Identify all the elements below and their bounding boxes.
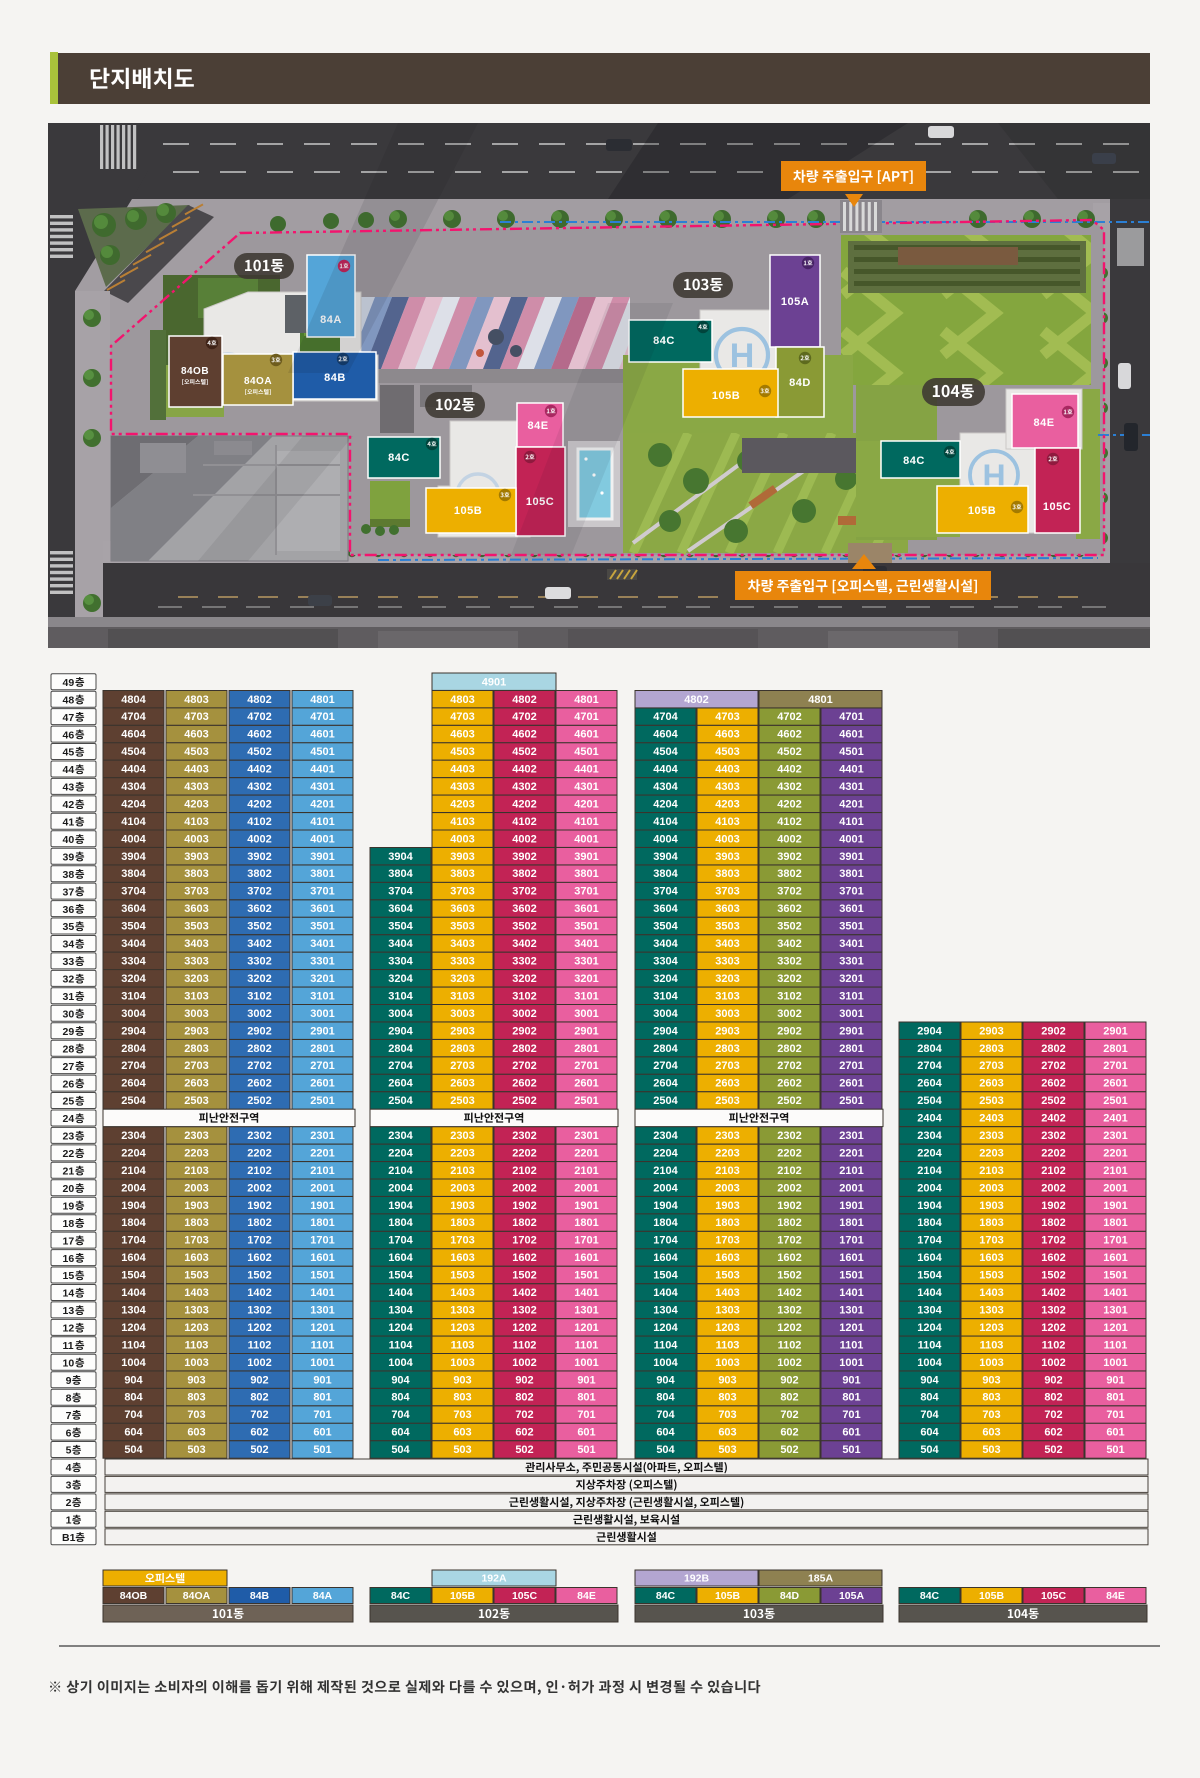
svg-text:4102: 4102 <box>247 816 271 828</box>
svg-text:1801: 1801 <box>1103 1217 1127 1229</box>
svg-text:2801: 2801 <box>310 1043 334 1055</box>
svg-text:1503: 1503 <box>979 1270 1003 1282</box>
svg-text:3404: 3404 <box>121 938 146 950</box>
svg-text:3804: 3804 <box>388 868 413 880</box>
svg-text:1901: 1901 <box>310 1200 334 1212</box>
svg-text:3303: 3303 <box>715 956 739 968</box>
svg-text:704: 704 <box>124 1409 143 1421</box>
svg-text:4603: 4603 <box>184 729 208 741</box>
svg-text:4102: 4102 <box>512 816 536 828</box>
svg-text:3501: 3501 <box>839 921 863 933</box>
svg-text:2704: 2704 <box>917 1060 942 1072</box>
svg-text:4404: 4404 <box>121 764 146 776</box>
svg-text:2003: 2003 <box>184 1182 208 1194</box>
svg-text:2704: 2704 <box>121 1060 146 1072</box>
svg-text:3603: 3603 <box>184 903 208 915</box>
svg-text:2501: 2501 <box>839 1095 863 1107</box>
svg-text:2602: 2602 <box>512 1078 536 1090</box>
svg-text:4702: 4702 <box>512 711 536 723</box>
svg-text:504: 504 <box>920 1444 939 1456</box>
svg-text:3902: 3902 <box>777 851 801 863</box>
svg-text:105C: 105C <box>1043 501 1071 513</box>
svg-text:34: 34 <box>63 939 75 951</box>
svg-text:2204: 2204 <box>917 1148 942 1160</box>
svg-text:1504: 1504 <box>388 1270 413 1282</box>
svg-text:3701: 3701 <box>839 886 863 898</box>
svg-text:2301: 2301 <box>1103 1130 1127 1142</box>
svg-text:4: 4 <box>66 1462 72 1474</box>
svg-text:2202: 2202 <box>1041 1148 1065 1160</box>
svg-text:3501: 3501 <box>574 921 598 933</box>
svg-text:1402: 1402 <box>777 1287 801 1299</box>
svg-text:2604: 2604 <box>917 1078 942 1090</box>
svg-text:1101: 1101 <box>840 1339 864 1351</box>
svg-text:13: 13 <box>63 1305 75 1317</box>
svg-text:804: 804 <box>124 1392 143 1404</box>
svg-text:1904: 1904 <box>121 1200 146 1212</box>
svg-text:3903: 3903 <box>715 851 739 863</box>
svg-text:4201: 4201 <box>839 798 863 810</box>
svg-text:3601: 3601 <box>574 903 598 915</box>
svg-text:2004: 2004 <box>653 1182 678 1194</box>
svg-text:2901: 2901 <box>310 1025 334 1037</box>
svg-text:105C: 105C <box>1041 1590 1067 1602</box>
svg-text:2902: 2902 <box>247 1025 271 1037</box>
svg-text:1901: 1901 <box>839 1200 863 1212</box>
svg-text:84C: 84C <box>656 1590 676 1602</box>
svg-text:702: 702 <box>780 1409 798 1421</box>
svg-text:1004: 1004 <box>917 1357 942 1369</box>
svg-text:1002: 1002 <box>777 1357 801 1369</box>
svg-text:1003: 1003 <box>979 1357 1003 1369</box>
svg-text:84E: 84E <box>1033 417 1054 429</box>
svg-text:904: 904 <box>656 1374 675 1386</box>
svg-text:4202: 4202 <box>512 798 536 810</box>
svg-text:192B: 192B <box>684 1573 710 1585</box>
svg-text:1204: 1204 <box>121 1322 146 1334</box>
svg-text:1003: 1003 <box>450 1357 474 1369</box>
svg-text:11: 11 <box>63 1340 74 1352</box>
svg-text:2901: 2901 <box>1103 1025 1127 1037</box>
svg-text:2004: 2004 <box>917 1182 942 1194</box>
svg-text:1604: 1604 <box>653 1252 678 1264</box>
svg-text:1104: 1104 <box>918 1339 943 1351</box>
svg-text:604: 604 <box>124 1427 143 1439</box>
svg-text:1103: 1103 <box>980 1339 1004 1351</box>
svg-text:2502: 2502 <box>247 1095 271 1107</box>
svg-text:2703: 2703 <box>715 1060 739 1072</box>
svg-text:3003: 3003 <box>450 1008 474 1020</box>
svg-text:702: 702 <box>1044 1409 1062 1421</box>
svg-text:1302: 1302 <box>512 1305 536 1317</box>
svg-text:1004: 1004 <box>121 1357 146 1369</box>
svg-text:3002: 3002 <box>247 1008 271 1020</box>
svg-text:2101: 2101 <box>310 1165 334 1177</box>
svg-text:4401: 4401 <box>310 764 334 776</box>
svg-text:701: 701 <box>1106 1409 1124 1421</box>
svg-text:1903: 1903 <box>715 1200 739 1212</box>
svg-text:3602: 3602 <box>512 903 536 915</box>
svg-text:4703: 4703 <box>450 711 474 723</box>
svg-text:904: 904 <box>124 1374 143 1386</box>
svg-text:3104: 3104 <box>388 990 413 1002</box>
svg-text:4402: 4402 <box>777 764 801 776</box>
svg-text:4402: 4402 <box>247 764 271 776</box>
svg-text:1501: 1501 <box>1103 1270 1127 1282</box>
svg-text:2902: 2902 <box>777 1025 801 1037</box>
svg-text:2304: 2304 <box>121 1130 146 1142</box>
svg-text:1802: 1802 <box>512 1217 536 1229</box>
svg-text:804: 804 <box>920 1392 939 1404</box>
svg-text:4302: 4302 <box>777 781 801 793</box>
svg-text:2803: 2803 <box>715 1043 739 1055</box>
svg-text:4701: 4701 <box>310 711 334 723</box>
svg-text:1804: 1804 <box>121 1217 146 1229</box>
svg-text:84C: 84C <box>903 455 925 467</box>
svg-text:3801: 3801 <box>310 868 334 880</box>
svg-text:4202: 4202 <box>247 798 271 810</box>
svg-text:26: 26 <box>63 1078 75 1090</box>
svg-text:3303: 3303 <box>450 956 474 968</box>
svg-text:4104: 4104 <box>121 816 146 828</box>
svg-text:3201: 3201 <box>574 973 598 985</box>
svg-text:2104: 2104 <box>388 1165 413 1177</box>
svg-text:3904: 3904 <box>121 851 146 863</box>
svg-text:1201: 1201 <box>839 1322 863 1334</box>
svg-text:39: 39 <box>63 851 75 863</box>
svg-text:1001: 1001 <box>839 1357 863 1369</box>
svg-text:704: 704 <box>391 1409 410 1421</box>
svg-text:1703: 1703 <box>715 1235 739 1247</box>
svg-text:2601: 2601 <box>310 1078 334 1090</box>
svg-text:1201: 1201 <box>1103 1322 1127 1334</box>
svg-text:4101: 4101 <box>839 816 863 828</box>
svg-text:1002: 1002 <box>1041 1357 1065 1369</box>
svg-text:1702: 1702 <box>512 1235 536 1247</box>
svg-text:4303: 4303 <box>450 781 474 793</box>
svg-text:84OA: 84OA <box>244 376 272 387</box>
svg-text:2504: 2504 <box>388 1095 413 1107</box>
svg-text:4103: 4103 <box>450 816 474 828</box>
svg-text:1802: 1802 <box>1041 1217 1065 1229</box>
svg-text:1201: 1201 <box>574 1322 598 1334</box>
svg-text:2502: 2502 <box>1041 1095 1065 1107</box>
svg-text:2102: 2102 <box>1041 1165 1065 1177</box>
svg-text:3403: 3403 <box>450 938 474 950</box>
svg-text:1904: 1904 <box>917 1200 942 1212</box>
svg-text:3004: 3004 <box>388 1008 413 1020</box>
svg-text:2904: 2904 <box>121 1025 146 1037</box>
svg-text:3903: 3903 <box>184 851 208 863</box>
svg-text:1204: 1204 <box>917 1322 942 1334</box>
svg-text:4204: 4204 <box>653 798 678 810</box>
svg-text:2203: 2203 <box>715 1148 739 1160</box>
svg-text:2201: 2201 <box>839 1148 863 1160</box>
svg-text:2303: 2303 <box>450 1130 474 1142</box>
svg-text:4503: 4503 <box>184 746 208 758</box>
svg-text:3002: 3002 <box>777 1008 801 1020</box>
svg-text:2702: 2702 <box>247 1060 271 1072</box>
svg-text:2202: 2202 <box>512 1148 536 1160</box>
svg-text:1804: 1804 <box>917 1217 942 1229</box>
svg-text:84OA: 84OA <box>183 1590 211 1602</box>
svg-text:1603: 1603 <box>450 1252 474 1264</box>
svg-text:4001: 4001 <box>574 833 598 845</box>
svg-text:84E: 84E <box>577 1590 596 1602</box>
svg-text:2601: 2601 <box>1103 1078 1127 1090</box>
svg-text:1202: 1202 <box>777 1322 801 1334</box>
svg-text:3703: 3703 <box>450 886 474 898</box>
svg-text:3604: 3604 <box>653 903 678 915</box>
svg-text:503: 503 <box>982 1444 1000 1456</box>
svg-text:2704: 2704 <box>653 1060 678 1072</box>
svg-text:903: 903 <box>718 1374 736 1386</box>
svg-text:2102: 2102 <box>247 1165 271 1177</box>
svg-text:2903: 2903 <box>715 1025 739 1037</box>
svg-text:3302: 3302 <box>247 956 271 968</box>
svg-text:9: 9 <box>66 1375 72 1387</box>
svg-text:105B: 105B <box>454 505 482 517</box>
svg-text:1801: 1801 <box>574 1217 598 1229</box>
svg-text:4702: 4702 <box>247 711 271 723</box>
svg-text:3102: 3102 <box>512 990 536 1002</box>
svg-text:2902: 2902 <box>512 1025 536 1037</box>
svg-text:2503: 2503 <box>715 1095 739 1107</box>
svg-text:84OB: 84OB <box>181 366 209 377</box>
svg-text:3803: 3803 <box>715 868 739 880</box>
svg-text:84C: 84C <box>920 1590 940 1602</box>
svg-text:45: 45 <box>63 747 75 759</box>
svg-text:3203: 3203 <box>715 973 739 985</box>
svg-text:3802: 3802 <box>512 868 536 880</box>
svg-text:29: 29 <box>63 1026 75 1038</box>
svg-text:903: 903 <box>453 1374 471 1386</box>
svg-text:1904: 1904 <box>388 1200 413 1212</box>
svg-text:2504: 2504 <box>917 1095 942 1107</box>
svg-text:701: 701 <box>842 1409 860 1421</box>
svg-text:1302: 1302 <box>777 1305 801 1317</box>
svg-text:4004: 4004 <box>121 833 146 845</box>
svg-text:2804: 2804 <box>917 1043 942 1055</box>
svg-text:1104: 1104 <box>122 1339 147 1351</box>
svg-text:4503: 4503 <box>450 746 474 758</box>
svg-text:801: 801 <box>842 1392 860 1404</box>
svg-text:24: 24 <box>63 1113 75 1125</box>
svg-text:15: 15 <box>63 1270 75 1282</box>
svg-text:1202: 1202 <box>1041 1322 1065 1334</box>
svg-text:4503: 4503 <box>715 746 739 758</box>
svg-text:84B: 84B <box>250 1590 270 1602</box>
svg-text:904: 904 <box>391 1374 410 1386</box>
svg-text:1602: 1602 <box>1041 1252 1065 1264</box>
svg-text:1903: 1903 <box>184 1200 208 1212</box>
svg-text:4703: 4703 <box>184 711 208 723</box>
svg-text:31: 31 <box>63 991 75 1003</box>
svg-text:1902: 1902 <box>512 1200 536 1212</box>
svg-text:3301: 3301 <box>839 956 863 968</box>
svg-text:4701: 4701 <box>839 711 863 723</box>
svg-text:1502: 1502 <box>777 1270 801 1282</box>
svg-text:4403: 4403 <box>184 764 208 776</box>
svg-text:105C: 105C <box>512 1590 538 1602</box>
svg-text:4103: 4103 <box>184 816 208 828</box>
svg-text:4603: 4603 <box>450 729 474 741</box>
svg-text:185A: 185A <box>808 1573 834 1585</box>
svg-text:601: 601 <box>577 1427 595 1439</box>
svg-text:4101: 4101 <box>310 816 334 828</box>
svg-text:1102: 1102 <box>1042 1339 1066 1351</box>
svg-text:1403: 1403 <box>450 1287 474 1299</box>
svg-text:4501: 4501 <box>574 746 598 758</box>
svg-text:1802: 1802 <box>247 1217 271 1229</box>
svg-text:1204: 1204 <box>653 1322 678 1334</box>
svg-text:1702: 1702 <box>1041 1235 1065 1247</box>
svg-text:802: 802 <box>250 1392 268 1404</box>
svg-text:4102: 4102 <box>777 816 801 828</box>
svg-text:702: 702 <box>250 1409 268 1421</box>
svg-text:2003: 2003 <box>450 1182 474 1194</box>
svg-text:3804: 3804 <box>653 868 678 880</box>
svg-text:4201: 4201 <box>310 798 334 810</box>
svg-text:702: 702 <box>515 1409 533 1421</box>
svg-text:105A: 105A <box>839 1590 865 1602</box>
svg-text:21: 21 <box>63 1166 75 1178</box>
svg-text:1502: 1502 <box>1041 1270 1065 1282</box>
svg-text:1203: 1203 <box>184 1322 208 1334</box>
svg-text:803: 803 <box>982 1392 1000 1404</box>
svg-text:44: 44 <box>63 764 75 776</box>
svg-text:5: 5 <box>66 1445 72 1457</box>
svg-text:3101: 3101 <box>574 990 598 1002</box>
svg-text:902: 902 <box>515 1374 533 1386</box>
svg-text:1801: 1801 <box>839 1217 863 1229</box>
svg-text:2101: 2101 <box>839 1165 863 1177</box>
svg-text:504: 504 <box>656 1444 675 1456</box>
svg-text:1304: 1304 <box>388 1305 413 1317</box>
svg-text:2601: 2601 <box>839 1078 863 1090</box>
svg-text:2602: 2602 <box>777 1078 801 1090</box>
svg-text:84E: 84E <box>527 420 548 432</box>
svg-text:1301: 1301 <box>574 1305 598 1317</box>
svg-text:4901: 4901 <box>482 676 506 688</box>
svg-text:3304: 3304 <box>121 956 146 968</box>
svg-text:3702: 3702 <box>512 886 536 898</box>
svg-text:2004: 2004 <box>121 1182 146 1194</box>
svg-text:2502: 2502 <box>512 1095 536 1107</box>
svg-text:2803: 2803 <box>450 1043 474 1055</box>
svg-text:42: 42 <box>63 799 75 811</box>
svg-text:3102: 3102 <box>777 990 801 1002</box>
svg-text:1204: 1204 <box>388 1322 413 1334</box>
svg-text:2602: 2602 <box>1041 1078 1065 1090</box>
svg-text:1403: 1403 <box>184 1287 208 1299</box>
svg-text:1102: 1102 <box>248 1339 272 1351</box>
svg-text:1002: 1002 <box>512 1357 536 1369</box>
svg-text:3904: 3904 <box>388 851 413 863</box>
svg-text:2703: 2703 <box>184 1060 208 1072</box>
svg-text:3104: 3104 <box>653 990 678 1002</box>
svg-text:2701: 2701 <box>310 1060 334 1072</box>
svg-text:18: 18 <box>63 1218 75 1230</box>
svg-text:1504: 1504 <box>653 1270 678 1282</box>
svg-text:4504: 4504 <box>653 746 678 758</box>
svg-text:902: 902 <box>780 1374 798 1386</box>
svg-text:1403: 1403 <box>979 1287 1003 1299</box>
svg-text:2803: 2803 <box>979 1043 1003 1055</box>
svg-text:2002: 2002 <box>247 1182 271 1194</box>
svg-text:502: 502 <box>250 1444 268 1456</box>
svg-text:3504: 3504 <box>121 921 146 933</box>
svg-text:601: 601 <box>313 1427 331 1439</box>
svg-text:1302: 1302 <box>247 1305 271 1317</box>
svg-text:4602: 4602 <box>247 729 271 741</box>
svg-text:22: 22 <box>63 1148 75 1160</box>
svg-text:1502: 1502 <box>247 1270 271 1282</box>
svg-text:2201: 2201 <box>310 1148 334 1160</box>
svg-text:1803: 1803 <box>450 1217 474 1229</box>
svg-text:804: 804 <box>656 1392 675 1404</box>
svg-text:4001: 4001 <box>839 833 863 845</box>
svg-text:1202: 1202 <box>512 1322 536 1334</box>
svg-text:2604: 2604 <box>388 1078 413 1090</box>
svg-text:1002: 1002 <box>247 1357 271 1369</box>
svg-text:1202: 1202 <box>247 1322 271 1334</box>
svg-text:2001: 2001 <box>1103 1182 1127 1194</box>
svg-text:3102: 3102 <box>247 990 271 1002</box>
svg-text:1601: 1601 <box>839 1252 863 1264</box>
svg-text:1104: 1104 <box>654 1339 679 1351</box>
svg-text:4501: 4501 <box>839 746 863 758</box>
svg-text:501: 501 <box>842 1444 860 1456</box>
svg-text:701: 701 <box>313 1409 331 1421</box>
svg-text:1602: 1602 <box>247 1252 271 1264</box>
svg-text:1001: 1001 <box>310 1357 334 1369</box>
svg-text:2003: 2003 <box>715 1182 739 1194</box>
svg-text:3801: 3801 <box>839 868 863 880</box>
svg-text:1: 1 <box>66 1515 72 1527</box>
svg-text:1402: 1402 <box>512 1287 536 1299</box>
svg-text:502: 502 <box>515 1444 533 1456</box>
svg-text:2204: 2204 <box>121 1148 146 1160</box>
svg-text:10: 10 <box>63 1358 75 1370</box>
svg-text:4103: 4103 <box>715 816 739 828</box>
svg-text:3202: 3202 <box>777 973 801 985</box>
svg-text:1103: 1103 <box>185 1339 209 1351</box>
svg-text:1203: 1203 <box>450 1322 474 1334</box>
svg-text:1103: 1103 <box>451 1339 475 1351</box>
svg-text:1304: 1304 <box>653 1305 678 1317</box>
svg-text:602: 602 <box>515 1427 533 1439</box>
svg-text:1501: 1501 <box>839 1270 863 1282</box>
svg-text:802: 802 <box>515 1392 533 1404</box>
svg-text:1003: 1003 <box>184 1357 208 1369</box>
svg-text:38: 38 <box>63 869 75 881</box>
svg-text:1402: 1402 <box>247 1287 271 1299</box>
svg-text:4302: 4302 <box>247 781 271 793</box>
svg-text:3704: 3704 <box>653 886 678 898</box>
svg-text:37: 37 <box>63 886 75 898</box>
svg-text:801: 801 <box>1106 1392 1124 1404</box>
svg-text:33: 33 <box>63 956 75 968</box>
svg-text:603: 603 <box>982 1427 1000 1439</box>
svg-text:3401: 3401 <box>310 938 334 950</box>
svg-text:2901: 2901 <box>574 1025 598 1037</box>
svg-text:17: 17 <box>63 1235 75 1247</box>
svg-text:1504: 1504 <box>917 1270 942 1282</box>
svg-text:1503: 1503 <box>715 1270 739 1282</box>
svg-text:1401: 1401 <box>574 1287 598 1299</box>
svg-text:2703: 2703 <box>979 1060 1003 1072</box>
